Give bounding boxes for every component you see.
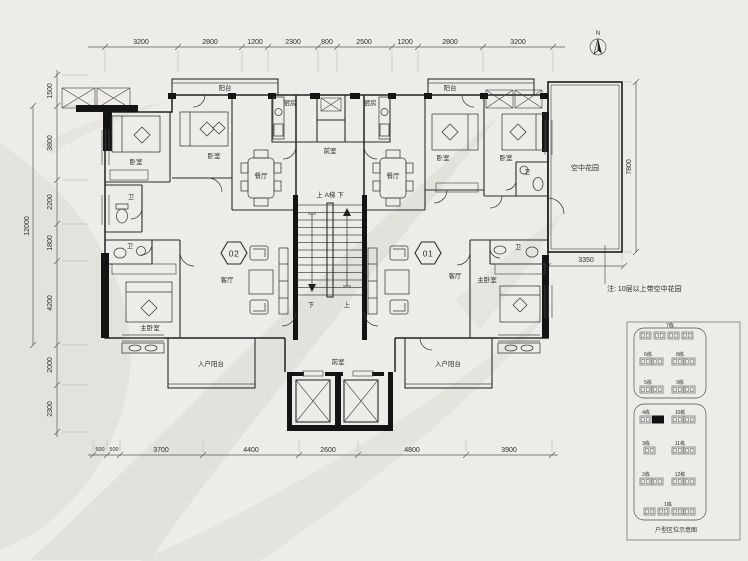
dim-top-3: 1200 [247, 39, 263, 46]
label-bath-1: 卫 [128, 194, 134, 201]
keyplan-block-4: 4栋 [642, 409, 650, 416]
dim-bottom-5: 2600 [320, 447, 336, 454]
keyplan-block-11: 11栋 [675, 440, 685, 447]
label-bedroom-4: 卧室 [500, 153, 514, 162]
keyplan-block-8: 8栋 [676, 351, 684, 358]
label-kitchen-right: 厨房 [364, 98, 377, 107]
keyplan-highlight-block [652, 416, 664, 424]
dim-left-1: 1500 [47, 83, 54, 99]
dim-top-9: 3200 [510, 39, 526, 46]
label-dining-right: 餐厅 [387, 171, 401, 180]
dim-top-2: 2800 [202, 39, 218, 46]
label-balcony-left: 阳台 [219, 83, 232, 92]
label-bath-4: 卫 [515, 244, 521, 251]
label-bedroom-1: 卧室 [130, 157, 144, 166]
north-label: N [596, 31, 600, 37]
label-bath-3: 卫 [524, 169, 530, 176]
dim-left-overall: 12000 [24, 216, 31, 236]
label-entry-balcony-left: 入户阳台 [198, 359, 224, 368]
label-master-left: 主卧室 [140, 323, 160, 332]
dim-bottom-6: 4800 [404, 447, 420, 454]
unit-number-right: 01 [423, 249, 433, 259]
dim-top-4: 2300 [285, 39, 301, 46]
dim-top-7: 1200 [397, 39, 413, 46]
label-sky-garden: 空中花园 [571, 163, 599, 172]
label-bedroom-2: 卧室 [208, 151, 222, 160]
keyplan-block-10: 10栋 [675, 409, 686, 416]
keyplan-block-2: 2栋 [642, 471, 650, 478]
dim-left-2: 3800 [47, 135, 54, 151]
label-vestibule-upper: 前室 [324, 146, 338, 155]
keyplan-block-5: 5栋 [644, 379, 652, 386]
dim-bottom-4: 4400 [243, 447, 259, 454]
dim-top-6: 2500 [356, 39, 372, 46]
label-living-left: 客厅 [221, 275, 235, 284]
dim-bottom-2: 500 [109, 447, 118, 453]
dim-top-8: 2800 [442, 39, 458, 46]
label-bedroom-3: 卧室 [437, 153, 451, 162]
label-bath-2: 卫 [127, 243, 133, 250]
keyplan-block-7: 7栋 [666, 322, 674, 329]
keyplan-caption: 户型区位示意图 [655, 526, 697, 534]
dim-sky-width: 3350 [578, 257, 594, 264]
label-entry-balcony-right: 入户阳台 [435, 359, 461, 368]
label-up: 上 [344, 300, 351, 309]
label-balcony-right: 阳台 [444, 83, 457, 92]
dim-bottom-7: 3900 [501, 447, 517, 454]
label-vestibule-lower: 前室 [332, 357, 346, 366]
unit-number-left: 02 [229, 249, 239, 259]
keyplan-block-6: 6栋 [644, 351, 652, 358]
note-text: 注: 10层以上带空中花园 [607, 284, 682, 293]
dim-left-4: 1800 [47, 235, 54, 251]
dim-bottom-1: 500 [95, 447, 104, 453]
dim-left-5: 4200 [47, 295, 54, 311]
keyplan-block-9: 9栋 [676, 379, 684, 386]
label-living-right: 客厅 [449, 271, 463, 280]
floorplan-page: 3200 2800 1200 2300 800 2500 1200 2800 3… [0, 0, 748, 561]
keyplan-block-3: 3栋 [642, 440, 650, 447]
floorplan-drawing: 3200 2800 1200 2300 800 2500 1200 2800 3… [0, 0, 748, 561]
label-dining-left: 餐厅 [255, 171, 269, 180]
dim-left-3: 2200 [47, 194, 54, 210]
dim-sky-height: 7800 [626, 159, 633, 175]
keyplan-block-1: 1栋 [664, 501, 672, 508]
dim-top-5: 800 [321, 39, 333, 46]
label-master-right: 主卧室 [477, 275, 497, 284]
keyplan-block-12: 12栋 [675, 471, 686, 478]
label-down: 下 [308, 301, 315, 309]
label-stair: 上 A梯 下 [316, 190, 344, 199]
label-kitchen-left: 厨房 [284, 98, 297, 107]
dim-bottom-3: 3700 [153, 447, 169, 454]
dim-left-6: 2000 [47, 357, 54, 373]
dim-top-1: 3200 [133, 39, 149, 46]
dim-left-7: 2300 [47, 401, 54, 417]
